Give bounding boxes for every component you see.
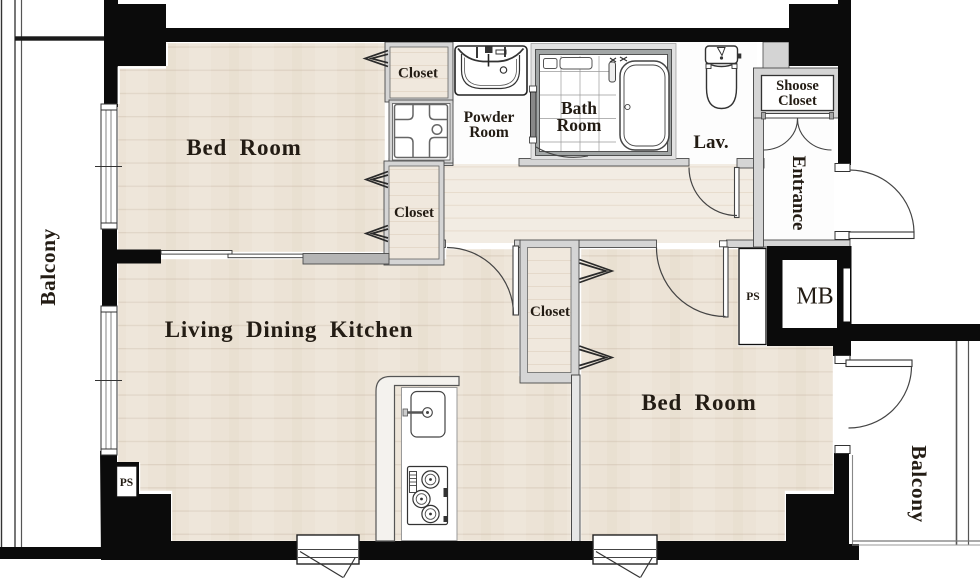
svg-text:Closet: Closet <box>398 66 438 82</box>
svg-text:Bed Room: Bed Room <box>641 390 756 415</box>
svg-text:Lav.: Lav. <box>693 132 728 153</box>
svg-text:PS: PS <box>746 291 759 303</box>
svg-text:Entrance: Entrance <box>788 156 809 231</box>
svg-text:Living Dining Kitchen: Living Dining Kitchen <box>165 317 414 342</box>
svg-text:Closet: Closet <box>778 93 817 109</box>
svg-text:PS: PS <box>120 477 133 489</box>
svg-text:Closet: Closet <box>530 304 570 320</box>
svg-text:Room: Room <box>469 124 509 141</box>
svg-text:Balcony: Balcony <box>36 228 60 306</box>
svg-text:Shoose: Shoose <box>776 78 819 94</box>
svg-text:Bed Room: Bed Room <box>186 135 301 160</box>
svg-text:Closet: Closet <box>394 205 434 221</box>
svg-text:Balcony: Balcony <box>907 445 931 523</box>
svg-text:MB: MB <box>796 284 833 310</box>
svg-text:Room: Room <box>557 115 602 135</box>
